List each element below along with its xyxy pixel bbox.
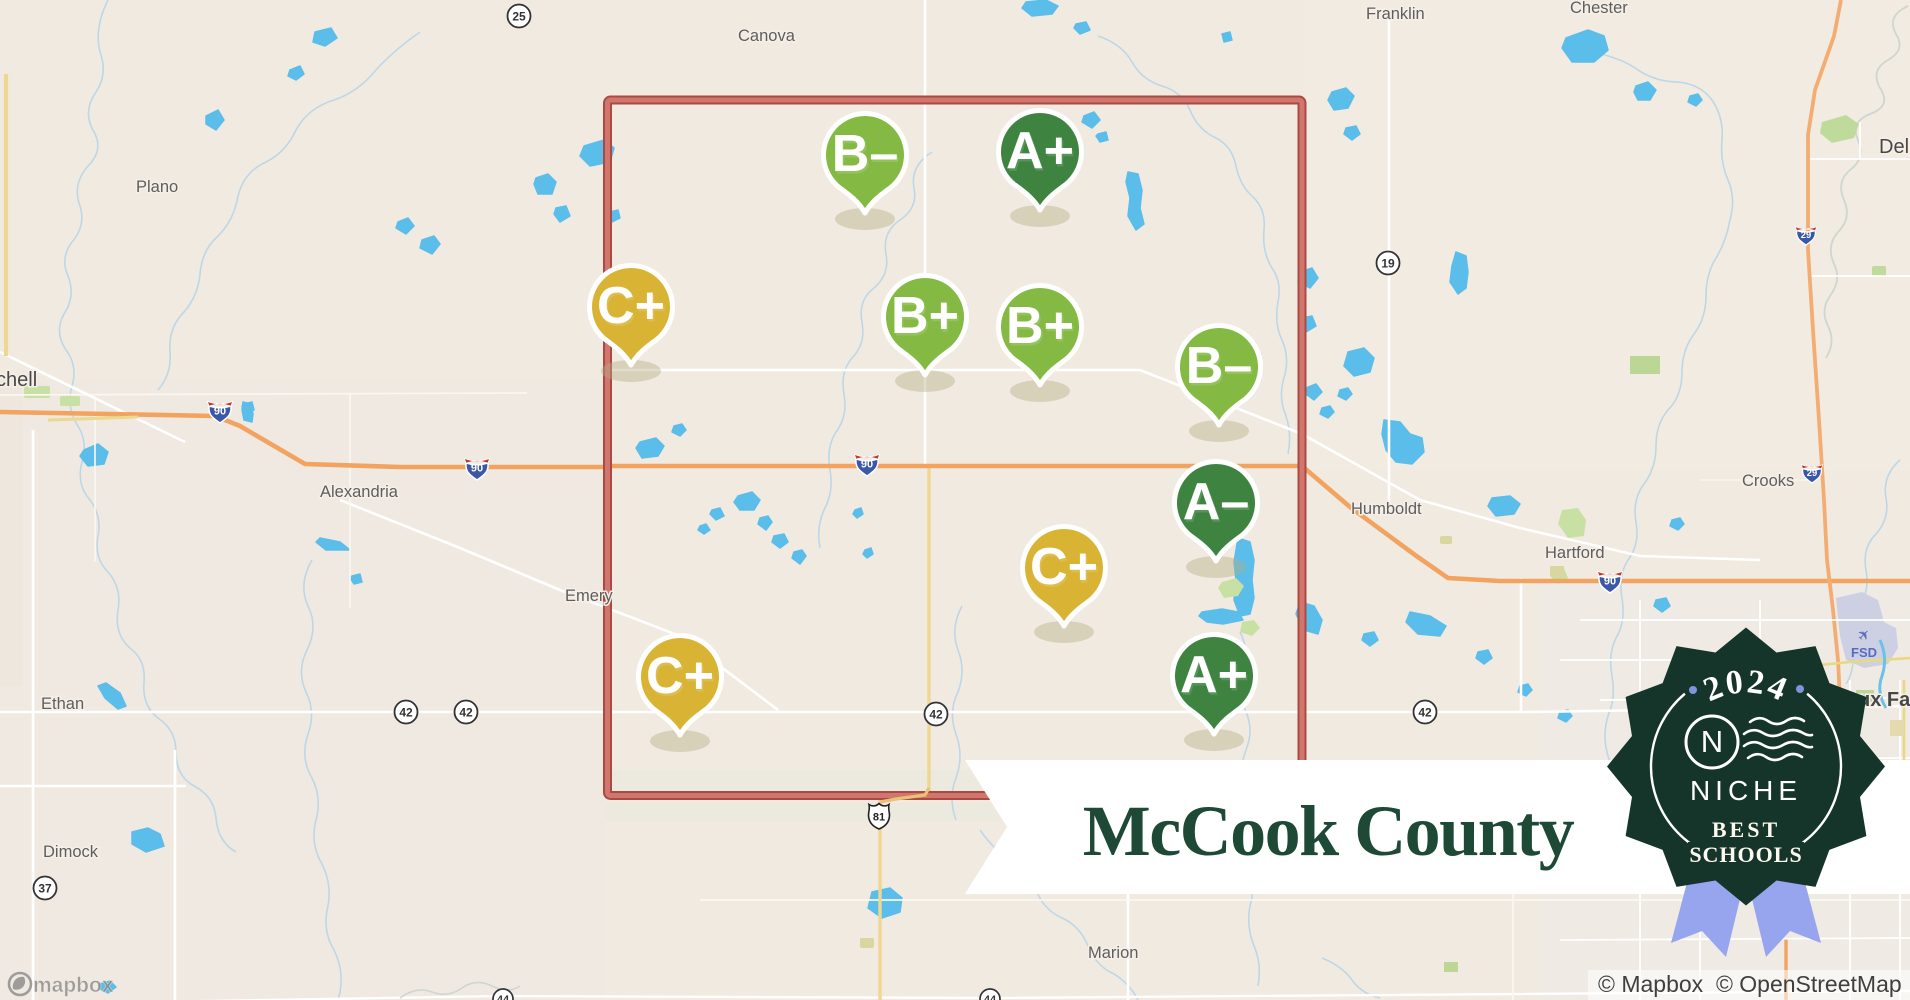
svg-text:29: 29 [1807,468,1817,478]
svg-text:B–: B– [1186,337,1252,395]
svg-text:N: N [1701,724,1723,759]
svg-text:Plano: Plano [136,178,178,196]
svg-text:A+: A+ [1006,122,1074,180]
svg-text:mapbox: mapbox [33,974,114,997]
svg-text:chell: chell [0,369,37,391]
svg-text:Chester: Chester [1570,0,1628,17]
svg-text:81: 81 [873,812,885,824]
svg-text:Emery: Emery [565,587,613,605]
svg-text:SCHOOLS: SCHOOLS [1689,842,1802,867]
svg-text:90: 90 [861,459,873,471]
svg-text:NICHE: NICHE [1690,775,1802,806]
svg-text:Humboldt: Humboldt [1351,500,1422,518]
svg-text:Hartford: Hartford [1545,544,1605,562]
svg-text:C+: C+ [646,647,714,705]
svg-text:90: 90 [471,463,483,475]
svg-text:19: 19 [1381,257,1395,271]
svg-text:A+: A+ [1180,646,1248,704]
svg-text:Franklin: Franklin [1366,5,1425,23]
svg-text:A–: A– [1183,473,1249,531]
svg-text:25: 25 [512,10,526,24]
svg-text:B+: B+ [1006,297,1074,355]
svg-text:90: 90 [214,406,226,418]
svg-text:Dimock: Dimock [43,843,99,861]
svg-text:Dell: Dell [1879,136,1910,158]
svg-text:Crooks: Crooks [1742,472,1794,490]
svg-text:B+: B+ [891,287,959,345]
svg-text:44: 44 [984,994,997,1000]
svg-text:44: 44 [497,994,510,1000]
svg-text:42: 42 [929,708,943,722]
svg-text:Canova: Canova [738,27,796,45]
svg-text:FSD: FSD [1851,645,1877,660]
svg-text:C+: C+ [1030,538,1098,596]
svg-text:42: 42 [399,706,413,720]
svg-text:McCook County: McCook County [1083,791,1575,871]
svg-text:Alexandria: Alexandria [320,483,399,501]
svg-text:42: 42 [1418,706,1432,720]
svg-text:B–: B– [832,125,898,183]
svg-text:Ethan: Ethan [41,695,84,713]
svg-text:Marion: Marion [1088,944,1138,962]
svg-text:© Mapbox © OpenStreetMap: © Mapbox © OpenStreetMap [1598,971,1902,997]
svg-text:37: 37 [38,882,52,896]
svg-text:29: 29 [1801,230,1811,240]
svg-text:90: 90 [1604,576,1616,588]
svg-text:C+: C+ [597,277,665,335]
svg-text:42: 42 [459,706,473,720]
svg-text:BEST: BEST [1712,817,1780,842]
